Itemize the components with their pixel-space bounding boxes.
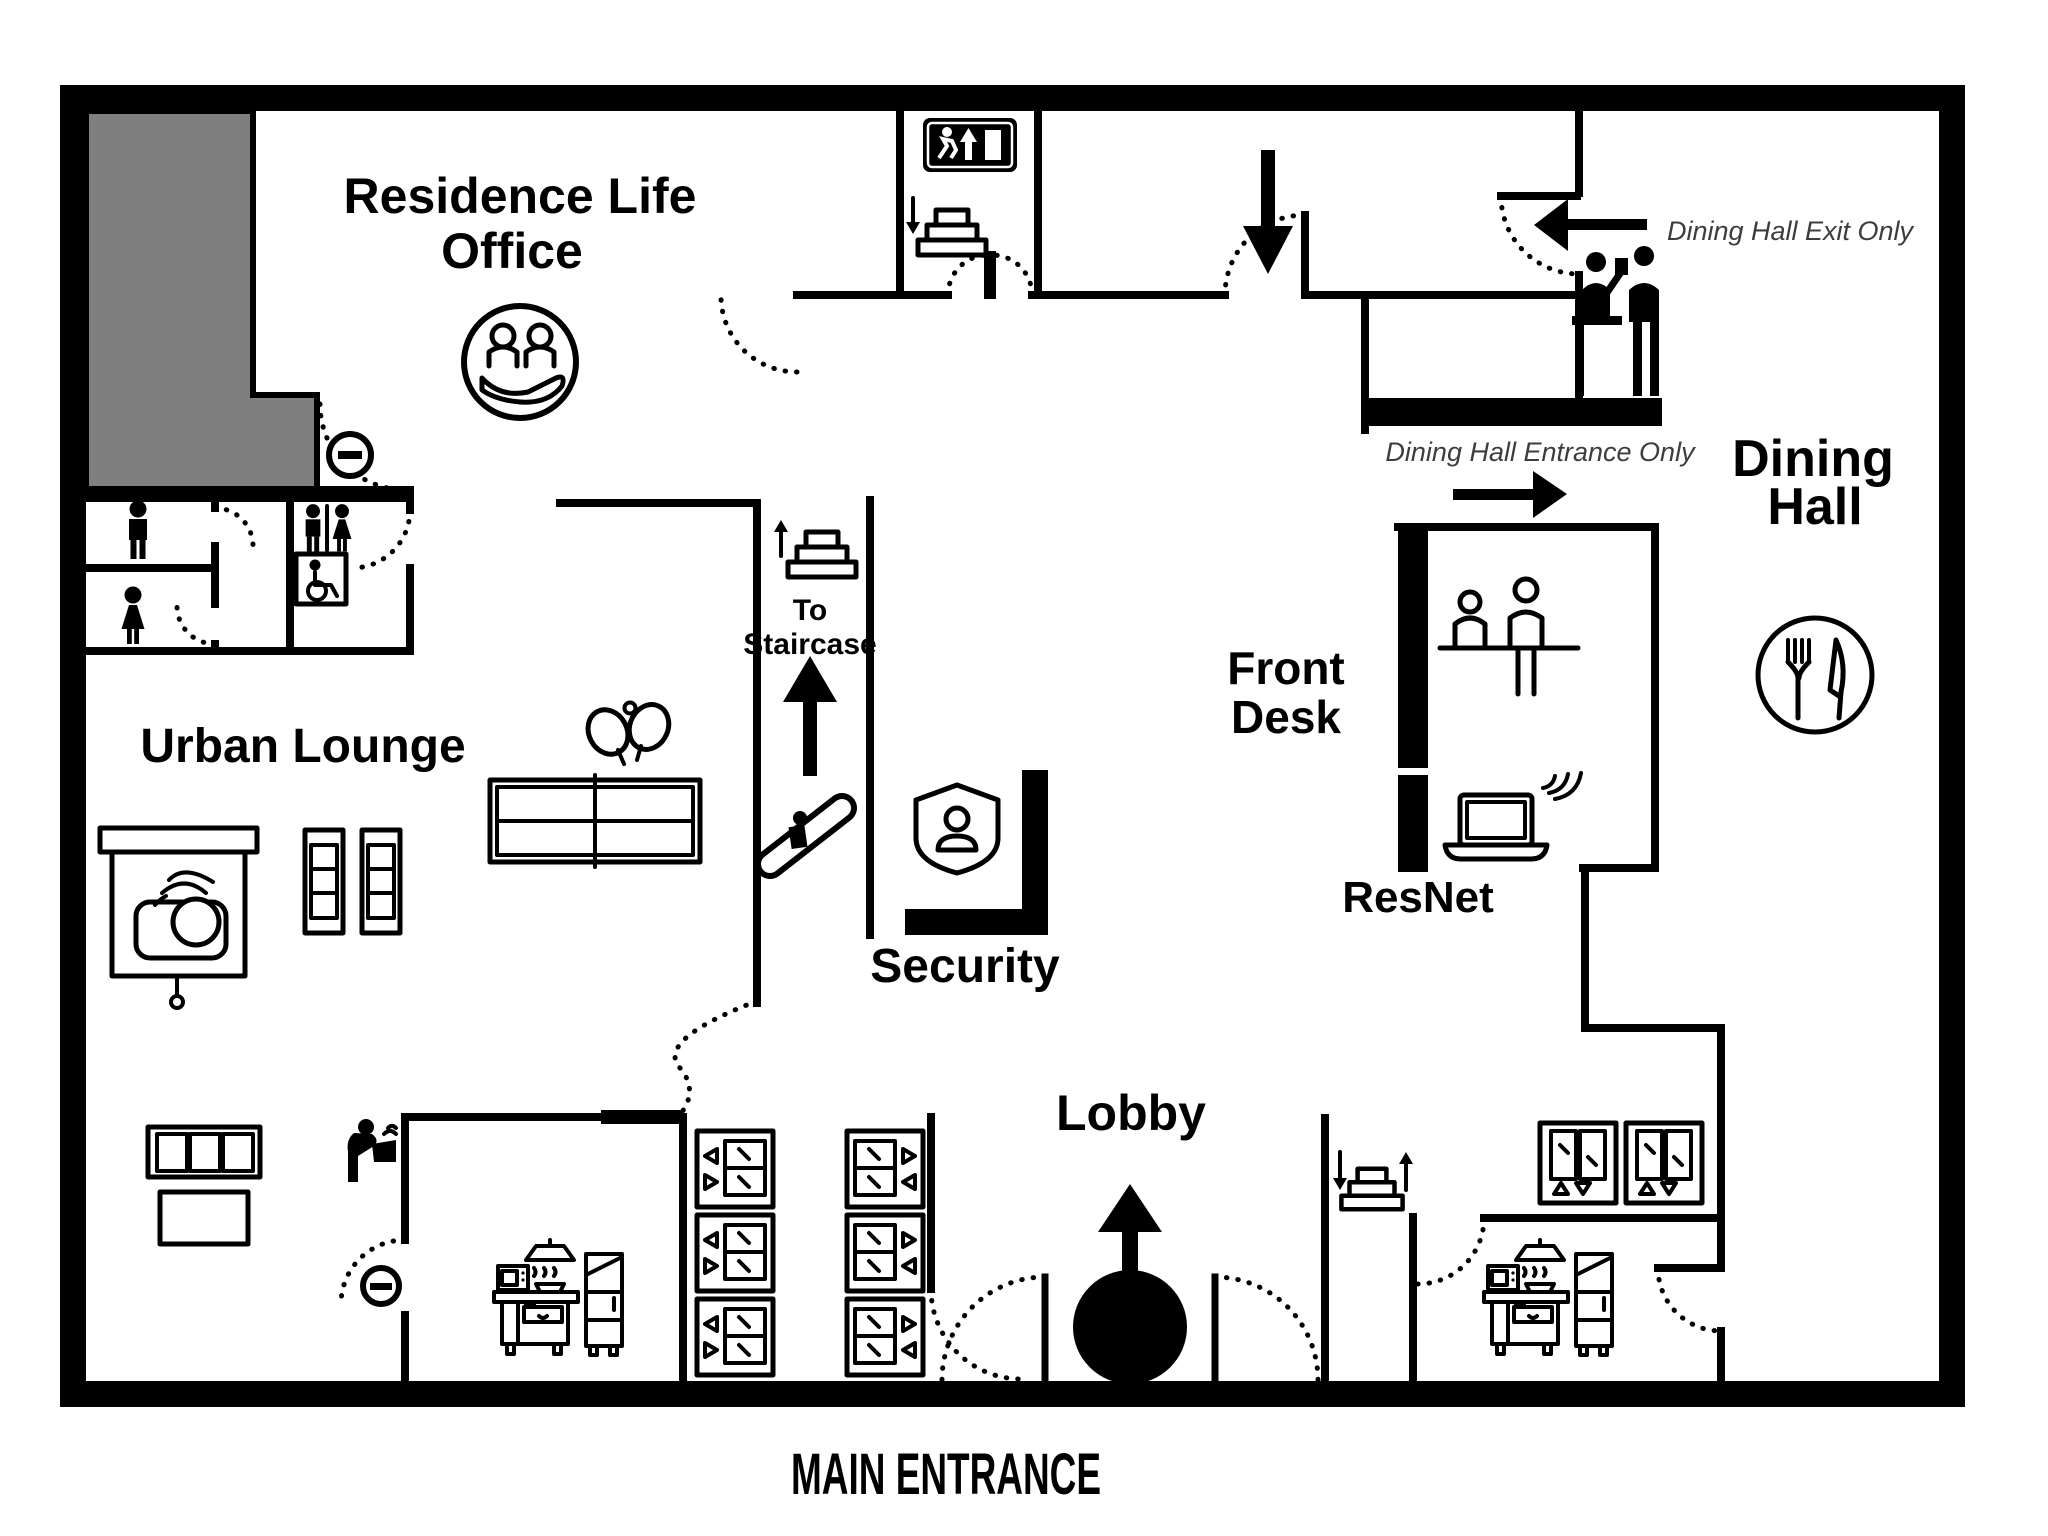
front-desk-wall (1398, 527, 1428, 872)
room-label-front-desk-line1: Front (1227, 642, 1345, 694)
fork-knife-plate-icon (1758, 618, 1872, 732)
room-label-lobby: Lobby (1056, 1085, 1206, 1141)
dining-entrance-counter-wall (1365, 398, 1662, 426)
room-label-residence-life-office-line1: Residence Life (344, 168, 697, 224)
room-label-urban-lounge: Urban Lounge (140, 720, 465, 773)
wall-under-restricted (86, 486, 414, 502)
floor-plan-page: To Staircase (0, 0, 2048, 1536)
room-label-residence-life-office-line2: Office (441, 223, 583, 279)
exit-sign-icon (923, 118, 1017, 172)
no-entry-icon (329, 434, 371, 476)
room-label-security: Security (870, 940, 1060, 993)
annotation-dining-hall-exit-only: Dining Hall Exit Only (1667, 216, 1915, 246)
wall-thick-segment (601, 1110, 683, 1124)
room-label-front-desk-line2: Desk (1231, 691, 1341, 743)
residence-life-icon (464, 306, 576, 418)
room-label-dining-hall-line2: Hall (1767, 478, 1862, 536)
main-entrance-label: MAIN ENTRANCE (791, 1442, 1101, 1507)
annotation-dining-hall-entrance-only: Dining Hall Entrance Only (1385, 437, 1696, 467)
floor-plan: To Staircase (0, 0, 2048, 1536)
to-staircase-label-line1: To (793, 594, 827, 627)
room-label-resnet: ResNet (1342, 873, 1494, 922)
no-entry-icon (363, 1268, 399, 1304)
